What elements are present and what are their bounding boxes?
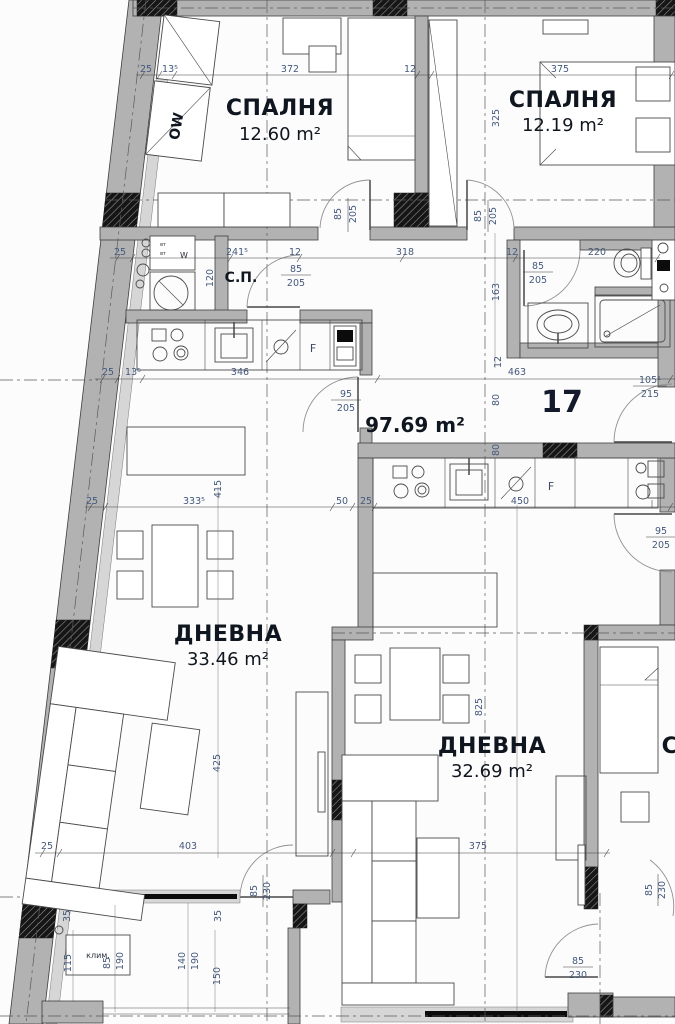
dim-372: 372	[281, 64, 299, 75]
dishwasher1-diag	[266, 330, 296, 362]
label-ac-unit: клим.	[86, 951, 110, 960]
dim-25-mid: 25	[102, 367, 114, 378]
frac-balc2-230: 230	[569, 970, 587, 981]
stove1-burner2	[153, 347, 167, 361]
dishwasher2-knob	[509, 477, 523, 491]
dim-163: 163	[491, 283, 502, 301]
frac-bd2-205: 205	[488, 207, 499, 225]
label-partial-room: С	[662, 734, 675, 759]
frac-bd2-85: 85	[473, 210, 484, 222]
label-living1-name: ДНЕВНА	[174, 622, 282, 647]
appliance1-top	[337, 330, 353, 342]
chair-living1-2	[117, 571, 143, 599]
dim-12-rot: 12	[493, 356, 504, 368]
frac-entry2-95: 95	[655, 526, 667, 537]
label-living2-name: ДНЕВНА	[438, 734, 546, 759]
bed-bedroom2	[540, 62, 675, 165]
column-balcony2	[600, 995, 613, 1017]
dim-325: 325	[491, 109, 502, 127]
toilet-bowl	[614, 249, 640, 277]
label-outlet-1: вт	[160, 242, 166, 248]
sofa-living2-seat1	[372, 801, 416, 861]
frac-storage-85: 85	[290, 264, 302, 275]
label-fridge2: F	[548, 480, 554, 493]
dim-403: 403	[179, 841, 197, 852]
dim-375-top: 375	[551, 64, 569, 75]
dim-35-a: 35	[62, 910, 73, 922]
dim-12-corr: 12	[289, 247, 301, 258]
tv-living2	[578, 845, 585, 905]
sofa-living2-seat2	[372, 861, 416, 921]
column-bedroom3	[584, 625, 598, 640]
door-arc-bedroom1	[320, 180, 370, 228]
dim-190-b: 190	[190, 952, 201, 970]
cabinet-nook	[150, 236, 195, 270]
dim-415: 415	[213, 480, 224, 498]
table-living2	[390, 648, 440, 720]
dim-25-liv: 25	[86, 496, 98, 507]
shaft-duct	[657, 260, 670, 271]
dim-425: 425	[212, 754, 223, 772]
wall-apartment-separator	[358, 443, 675, 458]
washer-diagonal	[159, 281, 183, 305]
kitchen1-counter	[137, 320, 362, 370]
stove1-burner-sq	[152, 329, 166, 341]
wall-bedroom3-top	[598, 625, 675, 640]
label-living1-area: 33.46 m²	[187, 649, 269, 670]
frac-entry2-205: 205	[652, 540, 670, 551]
frac-bath-85: 85	[532, 261, 544, 272]
column-bedroom3-low	[584, 867, 598, 909]
label-bedroom1-area: 12.60 m²	[239, 124, 321, 145]
chair-bedroom1	[309, 46, 336, 72]
column-between-bedrooms	[394, 193, 429, 227]
dim-25-corr: 25	[114, 247, 126, 258]
wall-balcony1-corner	[293, 890, 330, 904]
dim-25-top: 25	[140, 64, 152, 75]
wall-between-bedrooms	[415, 16, 428, 193]
stove2-burner3	[415, 483, 429, 497]
column-separator	[543, 443, 577, 458]
dim-346: 346	[231, 367, 249, 378]
dim-230-door3: 230	[657, 881, 668, 899]
label-storage: С.П.	[225, 270, 258, 286]
dim-120: 120	[205, 269, 216, 287]
stove2-burner-sq	[393, 466, 407, 478]
wall-balcony1-right	[288, 928, 300, 1024]
chair-living1-3	[207, 531, 233, 559]
bed-bedroom1	[348, 18, 415, 160]
dim-463: 463	[508, 367, 526, 378]
label-total-area: 97.69 m²	[365, 413, 465, 437]
wall-right-hall	[658, 300, 675, 387]
stove1-burner3-inner	[177, 349, 185, 357]
dim-190-a: 190	[115, 952, 126, 970]
wall-balcony1-parapet	[42, 1001, 103, 1023]
nightstand-bedroom3	[621, 792, 649, 822]
wall-bedrooms-3	[514, 227, 675, 240]
frac-hall-205: 205	[337, 403, 355, 414]
wall-right-living2	[660, 570, 675, 625]
toilet-bowl-inner	[621, 254, 637, 272]
cabinet-bedroom1-a	[158, 193, 224, 227]
dim-140: 140	[177, 952, 188, 970]
sideboard-living2	[373, 573, 497, 627]
wall-balcony2-right	[613, 997, 675, 1017]
frac-entry17-215: 215	[641, 389, 659, 400]
wall-bath-bottom	[520, 343, 675, 358]
kitchen2-fix1	[636, 463, 646, 473]
wall-living-divider-a	[358, 458, 373, 629]
dim-220: 220	[588, 247, 606, 258]
sink-bath-inner	[544, 315, 572, 333]
wall-bedrooms-2	[370, 227, 467, 240]
dim-80-a: 80	[491, 394, 502, 406]
dim-35-b: 35	[213, 910, 224, 922]
dim-150: 150	[212, 967, 223, 985]
stove2-burner3-inner	[418, 486, 426, 494]
sofa-living2-back	[342, 801, 372, 983]
label-washer: W	[180, 251, 188, 260]
dim-450: 450	[511, 496, 529, 507]
label-bedroom2-area: 12.19 m²	[522, 115, 604, 136]
floor-plan-drawing: 25 13⁵ 372 12 375 25 241⁵ 12 318 12 220 …	[0, 0, 675, 1024]
cabinet-bedroom1-b	[224, 193, 290, 227]
sofa-living2-seat3	[372, 921, 416, 983]
coffee-table-living2	[417, 838, 459, 918]
wall-kitchen1-b	[300, 310, 372, 323]
column-balcony1	[293, 904, 307, 928]
dim-115: 115	[63, 954, 74, 972]
table-living1	[152, 525, 198, 607]
chair-living2-4	[443, 695, 469, 723]
dim-80-b: 80	[491, 444, 502, 456]
coffee-table-living1	[140, 723, 200, 815]
stove2-burner1	[412, 466, 424, 478]
shower-diag	[606, 305, 660, 336]
stove1-burner3	[174, 346, 188, 360]
frac-bd1-85: 85	[333, 208, 344, 220]
label-outlet-2: вт	[160, 251, 166, 257]
dim-25-bot: 25	[41, 841, 53, 852]
frac-bd1-205: 205	[348, 205, 359, 223]
dim-50: 50	[336, 496, 348, 507]
floor-plan-page: 25 13⁵ 372 12 375 25 241⁵ 12 318 12 220 …	[0, 0, 675, 1024]
dim-85-door1: 85	[249, 885, 260, 897]
toilet-tank	[641, 248, 651, 279]
stove2-burner2	[394, 484, 408, 498]
wall-bedrooms-1	[100, 227, 318, 240]
sideboard-living1	[127, 427, 245, 475]
dim-13_5-top: 13⁵	[162, 64, 178, 75]
dim-241_5: 241⁵	[226, 247, 248, 258]
dim-12-top: 12	[404, 64, 416, 75]
bed-bedroom3	[600, 647, 658, 773]
dim-85-door3: 85	[644, 884, 655, 896]
dim-25-liv2: 25	[360, 496, 372, 507]
tv-living1	[318, 752, 325, 812]
wall-kitchen1-a	[126, 310, 247, 323]
wall-living-divider-jog	[332, 627, 373, 640]
sofa-living2-top	[342, 755, 438, 801]
dim-825: 825	[474, 698, 485, 716]
dim-230-door1: 230	[262, 882, 273, 900]
dim-13_5-mid: 13⁵	[125, 367, 141, 378]
label-bedroom2-name: СПАЛНЯ	[509, 88, 617, 113]
frac-balc2-85: 85	[572, 956, 584, 967]
stove1-burner1	[171, 329, 183, 341]
dishwasher2-diag	[501, 467, 531, 499]
frac-hall-95: 95	[340, 389, 352, 400]
chair-living2-3	[443, 655, 469, 683]
label-fridge1: F	[310, 342, 316, 355]
chair-living2-2	[355, 695, 381, 723]
sofa-living2-bottom	[342, 983, 454, 1005]
dishwasher1-knob	[274, 340, 288, 354]
chair-living1-1	[117, 531, 143, 559]
label-living2-area: 32.69 m²	[451, 761, 533, 782]
dim-333_5: 333⁵	[183, 496, 205, 507]
frac-entry17-105: 105¹	[639, 375, 661, 386]
frac-bath-205: 205	[529, 275, 547, 286]
dim-12-corr2: 12	[506, 247, 518, 258]
label-apartment-number: 17	[541, 385, 583, 420]
chair-living2-1	[355, 655, 381, 683]
chair-living1-4	[207, 571, 233, 599]
frac-storage-205: 205	[287, 278, 305, 289]
dim-318: 318	[396, 247, 414, 258]
dim-375-bot: 375	[469, 841, 487, 852]
shelf-bedroom2	[543, 20, 588, 34]
label-bedroom1-name: СПАЛНЯ	[226, 96, 334, 121]
